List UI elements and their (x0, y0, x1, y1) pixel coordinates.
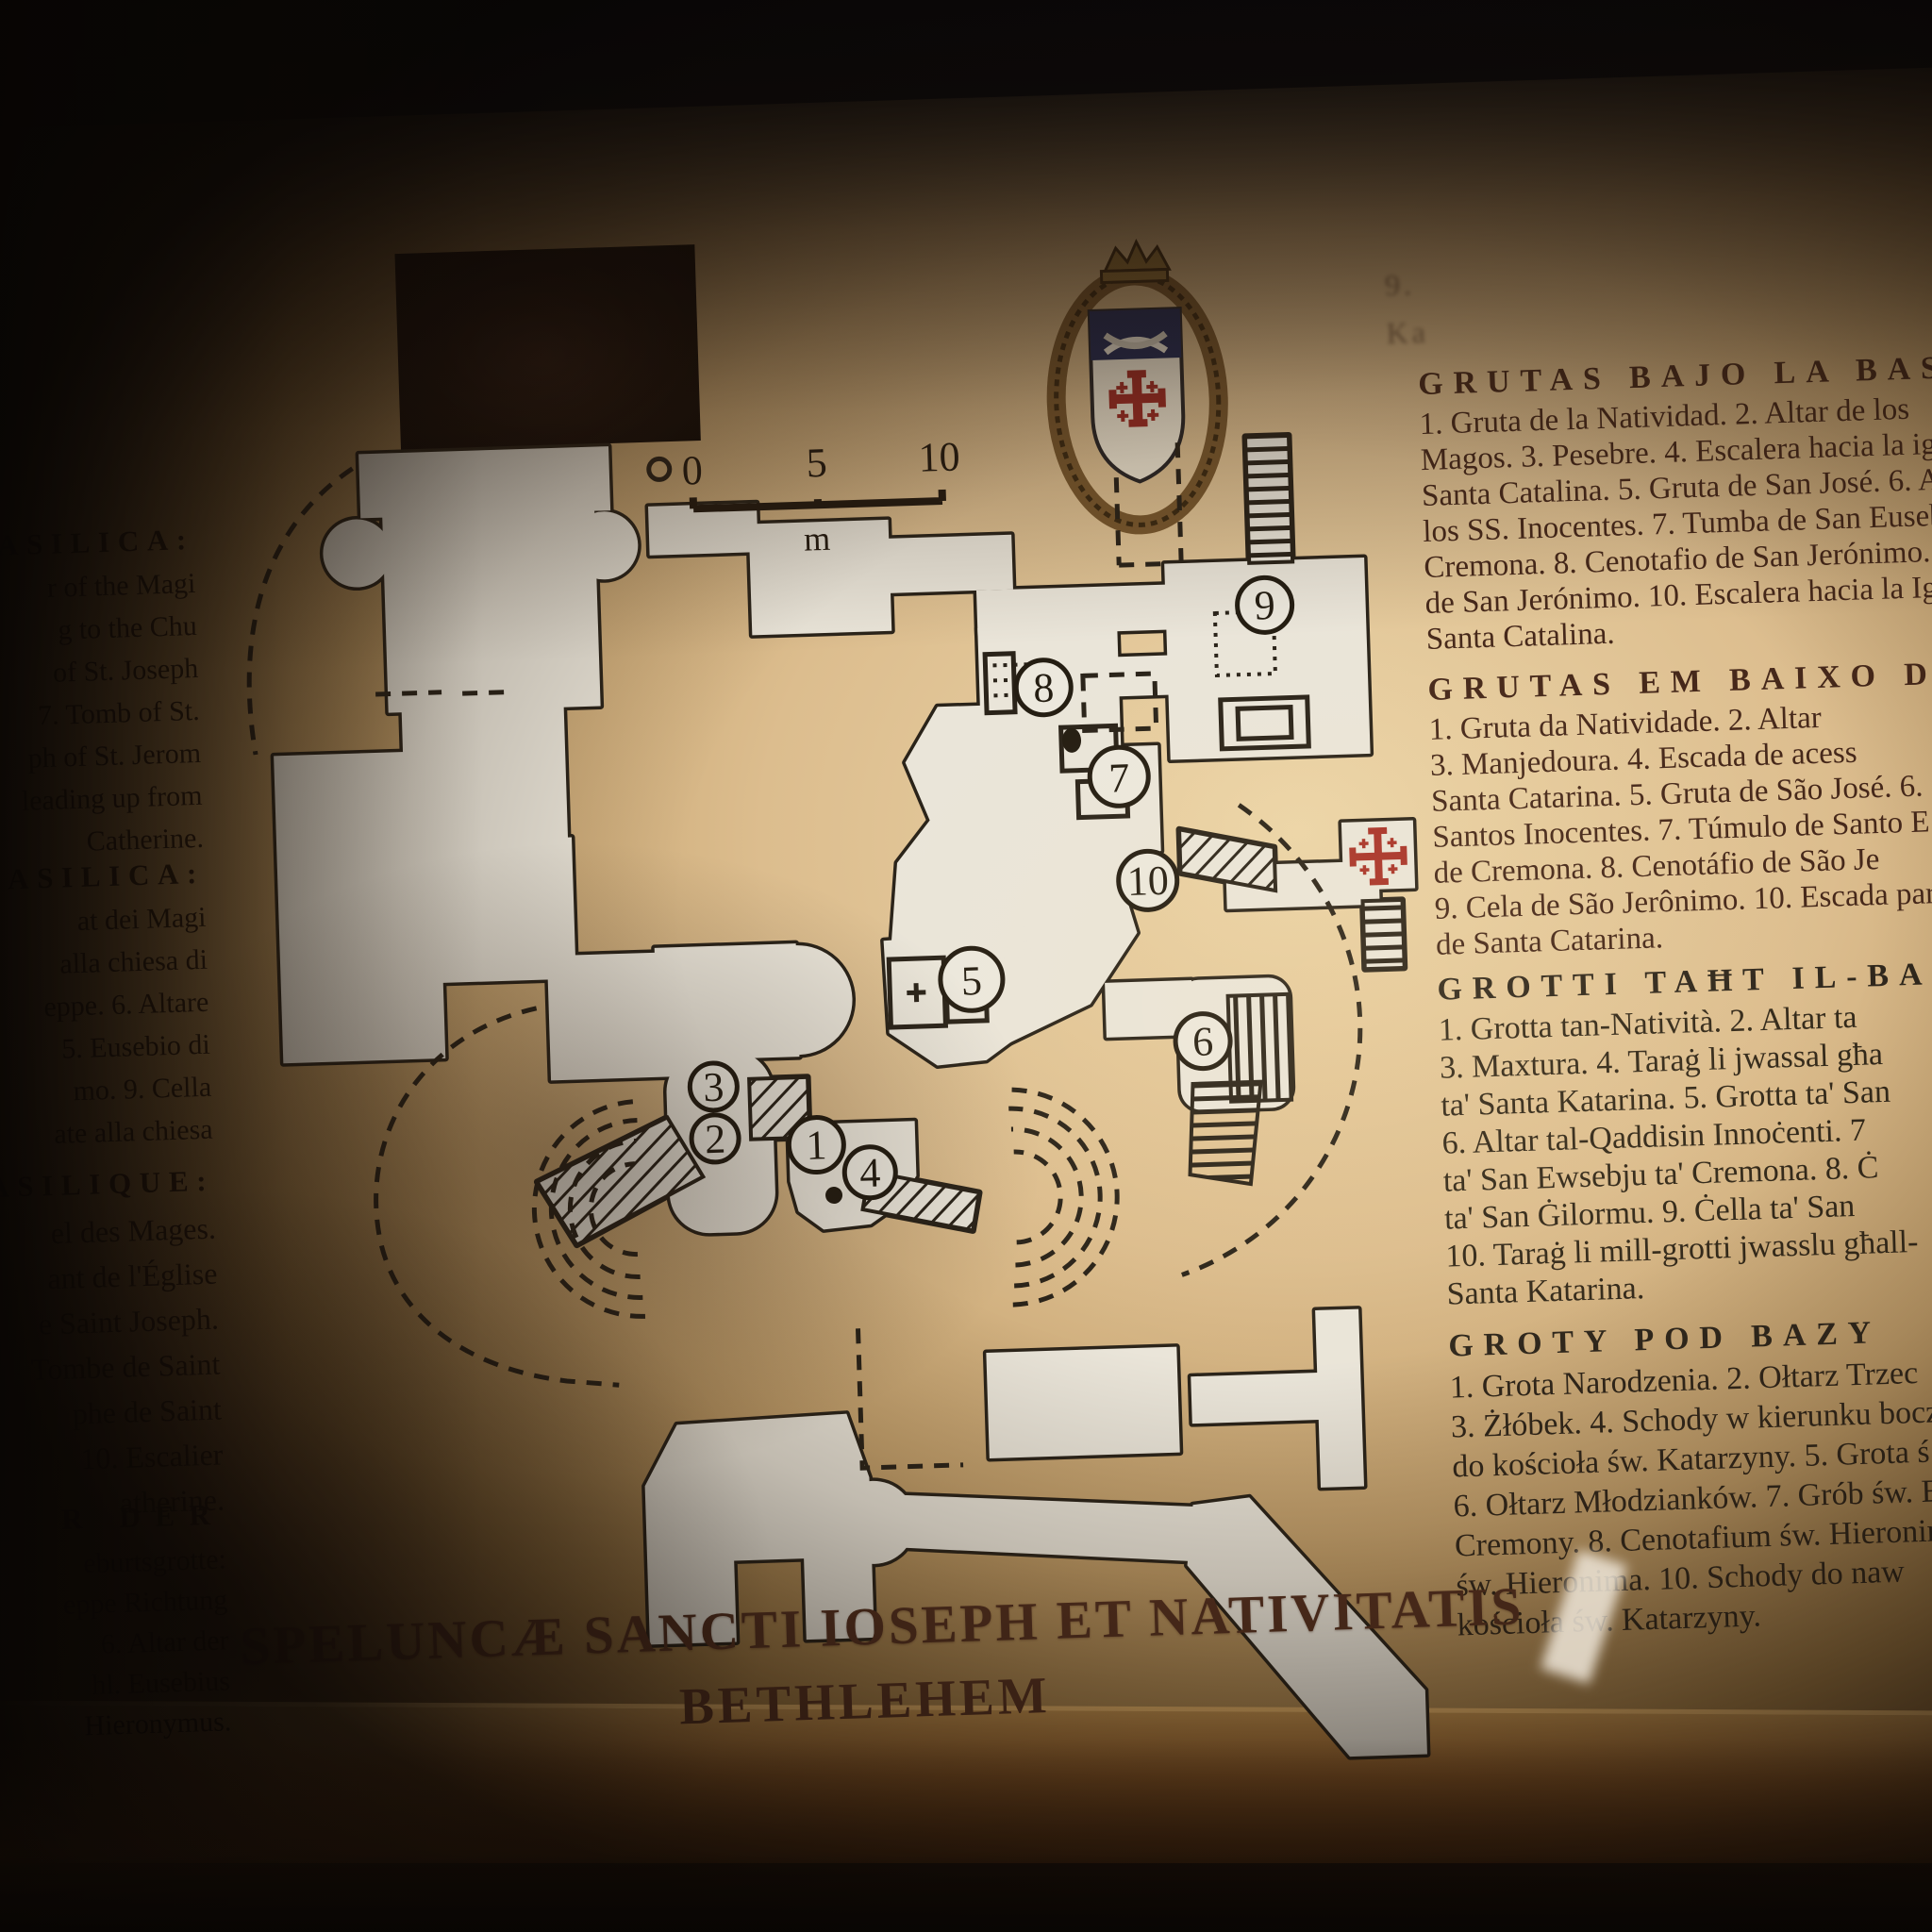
legend-lines: eburtsgrotte:eppe Richtung6. Altar derhl… (0, 1539, 232, 1754)
map-number-label: 8 (1032, 664, 1055, 711)
map-number-label: 4 (859, 1149, 882, 1196)
legend-lines: 1. Gruta da Natividade. 2. Altar3. Manje… (1428, 693, 1932, 962)
map-number-5: 5 (940, 947, 1004, 1011)
legend-german-fragment: R DER eburtsgrotte:eppe Richtung6. Altar… (0, 1497, 232, 1754)
legend-spanish: GRUTAS BAJO LA BASÍ 1. Gruta de la Nativ… (1418, 349, 1932, 658)
map-number-label: 2 (704, 1116, 726, 1163)
map-number-label: 9 (1254, 582, 1276, 629)
legend-french-fragment: ASILIQUE: el des Mages.ant de l'Églisee … (0, 1164, 225, 1535)
map-number-4: 4 (843, 1146, 896, 1199)
legend-portuguese: GRUTAS EM BAIXO DA BAS 1. Gruta da Nativ… (1427, 654, 1932, 962)
map-number-2: 2 (691, 1114, 740, 1163)
legend-english-fragment: E BASILICA: r of the Magig to the Chuof … (0, 523, 205, 872)
legend-heading: BASILICA: (0, 857, 206, 903)
scale-tick-0: 0 (681, 447, 704, 494)
crown-band (1101, 269, 1167, 282)
map-number-3: 3 (690, 1062, 739, 1111)
legend-lines: 1. Gruta de la Natividad. 2. Altar de lo… (1419, 389, 1932, 658)
map-number-label: 3 (703, 1064, 725, 1111)
text-line: 9. (1384, 267, 1427, 303)
shield-chief (1090, 308, 1182, 360)
legend-lines: 1. Grotta tan-Natività. 2. Altar ta3. Ma… (1438, 993, 1932, 1313)
scale-tick-10: 10 (918, 433, 961, 480)
map-number-label: 7 (1108, 755, 1131, 802)
photo-of-info-sign: 1 2 3 4 5 6 7 8 9 10 0 5 10 m 9. Ka GR (0, 0, 1932, 1932)
text-line: Hieronymus. (0, 1701, 232, 1754)
map-number-9: 9 (1237, 576, 1293, 633)
legend-lines: at dei Magialla chiesa dieppe. 6. Altare… (0, 896, 213, 1163)
sign-content: 1 2 3 4 5 6 7 8 9 10 0 5 10 m 9. Ka GR (0, 0, 1932, 1932)
text-line: ate alla chiesa (0, 1108, 213, 1163)
map-number-8: 8 (1015, 659, 1072, 716)
map-number-7: 7 (1089, 746, 1149, 807)
text-line: Ka (1386, 315, 1429, 351)
map-number-label: 10 (1126, 858, 1170, 905)
scale-unit: m (804, 520, 831, 558)
map-number-label: 6 (1191, 1018, 1214, 1065)
legend-heading: ASILIQUE: (0, 1164, 215, 1210)
legend-maltese: GROTTI TAĦT IL-BAŻI 1. Grotta tan-Nativi… (1437, 954, 1932, 1313)
map-number-6: 6 (1174, 1013, 1231, 1070)
map-number-1: 1 (788, 1117, 844, 1174)
scale-tick-5: 5 (806, 440, 828, 487)
crown-icon (1104, 241, 1169, 271)
legend-top-fragment: 9. Ka (1384, 267, 1429, 351)
legend-lines: r of the Magig to the Chuof St. Joseph7.… (0, 562, 205, 872)
legend-lines: el des Mages.ant de l'Églisee Saint Jose… (0, 1206, 225, 1535)
map-number-label: 5 (960, 958, 983, 1005)
map-number-label: 1 (806, 1122, 828, 1169)
legend-heading: R DER (0, 1497, 225, 1543)
map-number-10: 10 (1118, 850, 1178, 910)
legend-italian-fragment: BASILICA: at dei Magialla chiesa dieppe.… (0, 857, 213, 1163)
legend-heading: E BASILICA: (0, 523, 194, 569)
